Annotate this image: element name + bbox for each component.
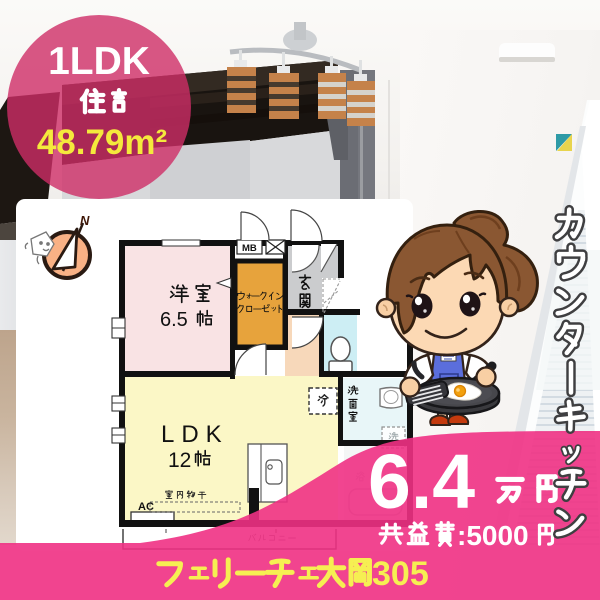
svg-text:N: N — [80, 213, 90, 228]
svg-text:6.5: 6.5 — [160, 309, 188, 331]
svg-text:MB: MB — [242, 243, 257, 254]
svg-text:305: 305 — [372, 555, 429, 593]
svg-text::5000: :5000 — [457, 520, 529, 551]
svg-text:6.4: 6.4 — [368, 439, 475, 525]
